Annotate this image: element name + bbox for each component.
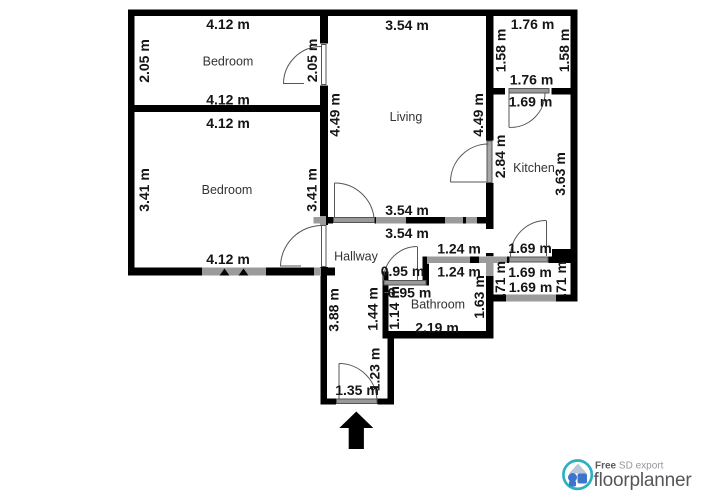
svg-text:3.54 m: 3.54 m: [385, 17, 429, 33]
svg-text:0.95 m: 0.95 m: [381, 263, 425, 279]
svg-text:1.24 m: 1.24 m: [437, 241, 481, 257]
svg-text:Hallway: Hallway: [334, 250, 379, 264]
svg-text:1.76 m: 1.76 m: [511, 16, 555, 32]
svg-text:4.49 m: 4.49 m: [327, 93, 343, 137]
svg-text:Bedroom: Bedroom: [202, 183, 253, 197]
svg-text:1.69 m: 1.69 m: [509, 94, 553, 110]
svg-text:2.84 m: 2.84 m: [492, 135, 508, 179]
svg-text:3.54 m: 3.54 m: [385, 202, 429, 218]
svg-text:Bathroom: Bathroom: [411, 298, 465, 312]
svg-text:1.58 m: 1.58 m: [493, 29, 509, 73]
svg-text:1.69 m: 1.69 m: [508, 240, 552, 256]
svg-text:3.88 m: 3.88 m: [326, 288, 342, 332]
svg-text:2.05 m: 2.05 m: [304, 39, 320, 83]
svg-text:3.41 m: 3.41 m: [304, 168, 320, 212]
svg-text:4.49 m: 4.49 m: [470, 93, 486, 137]
svg-text:4.12 m: 4.12 m: [206, 92, 250, 108]
svg-text:.71 m: .71 m: [492, 261, 508, 297]
svg-text:1.14 m: 1.14 m: [386, 286, 402, 330]
svg-text:3.41 m: 3.41 m: [136, 168, 152, 212]
svg-text:Living: Living: [390, 110, 423, 124]
svg-text:floorplanner: floorplanner: [594, 470, 693, 491]
svg-text:1.63 m: 1.63 m: [471, 275, 487, 319]
svg-text:1.58 m: 1.58 m: [556, 29, 572, 73]
svg-text:1.23 m: 1.23 m: [367, 348, 383, 392]
svg-text:1.69 m: 1.69 m: [508, 264, 552, 280]
svg-text:4.12 m: 4.12 m: [206, 115, 250, 131]
svg-text:2.19 m: 2.19 m: [415, 320, 459, 336]
svg-text:3.54 m: 3.54 m: [385, 225, 429, 241]
svg-text:4.12 m: 4.12 m: [206, 251, 250, 267]
svg-text:.71 m: .71 m: [553, 261, 569, 297]
svg-text:1.69 m: 1.69 m: [509, 279, 553, 295]
svg-text:4.12 m: 4.12 m: [206, 16, 250, 32]
svg-text:1.44 m: 1.44 m: [365, 287, 381, 331]
svg-text:1.76 m: 1.76 m: [510, 72, 554, 88]
svg-text:2.05 m: 2.05 m: [136, 39, 152, 83]
svg-text:Bedroom: Bedroom: [203, 55, 254, 69]
svg-text:Kitchen: Kitchen: [513, 161, 555, 175]
